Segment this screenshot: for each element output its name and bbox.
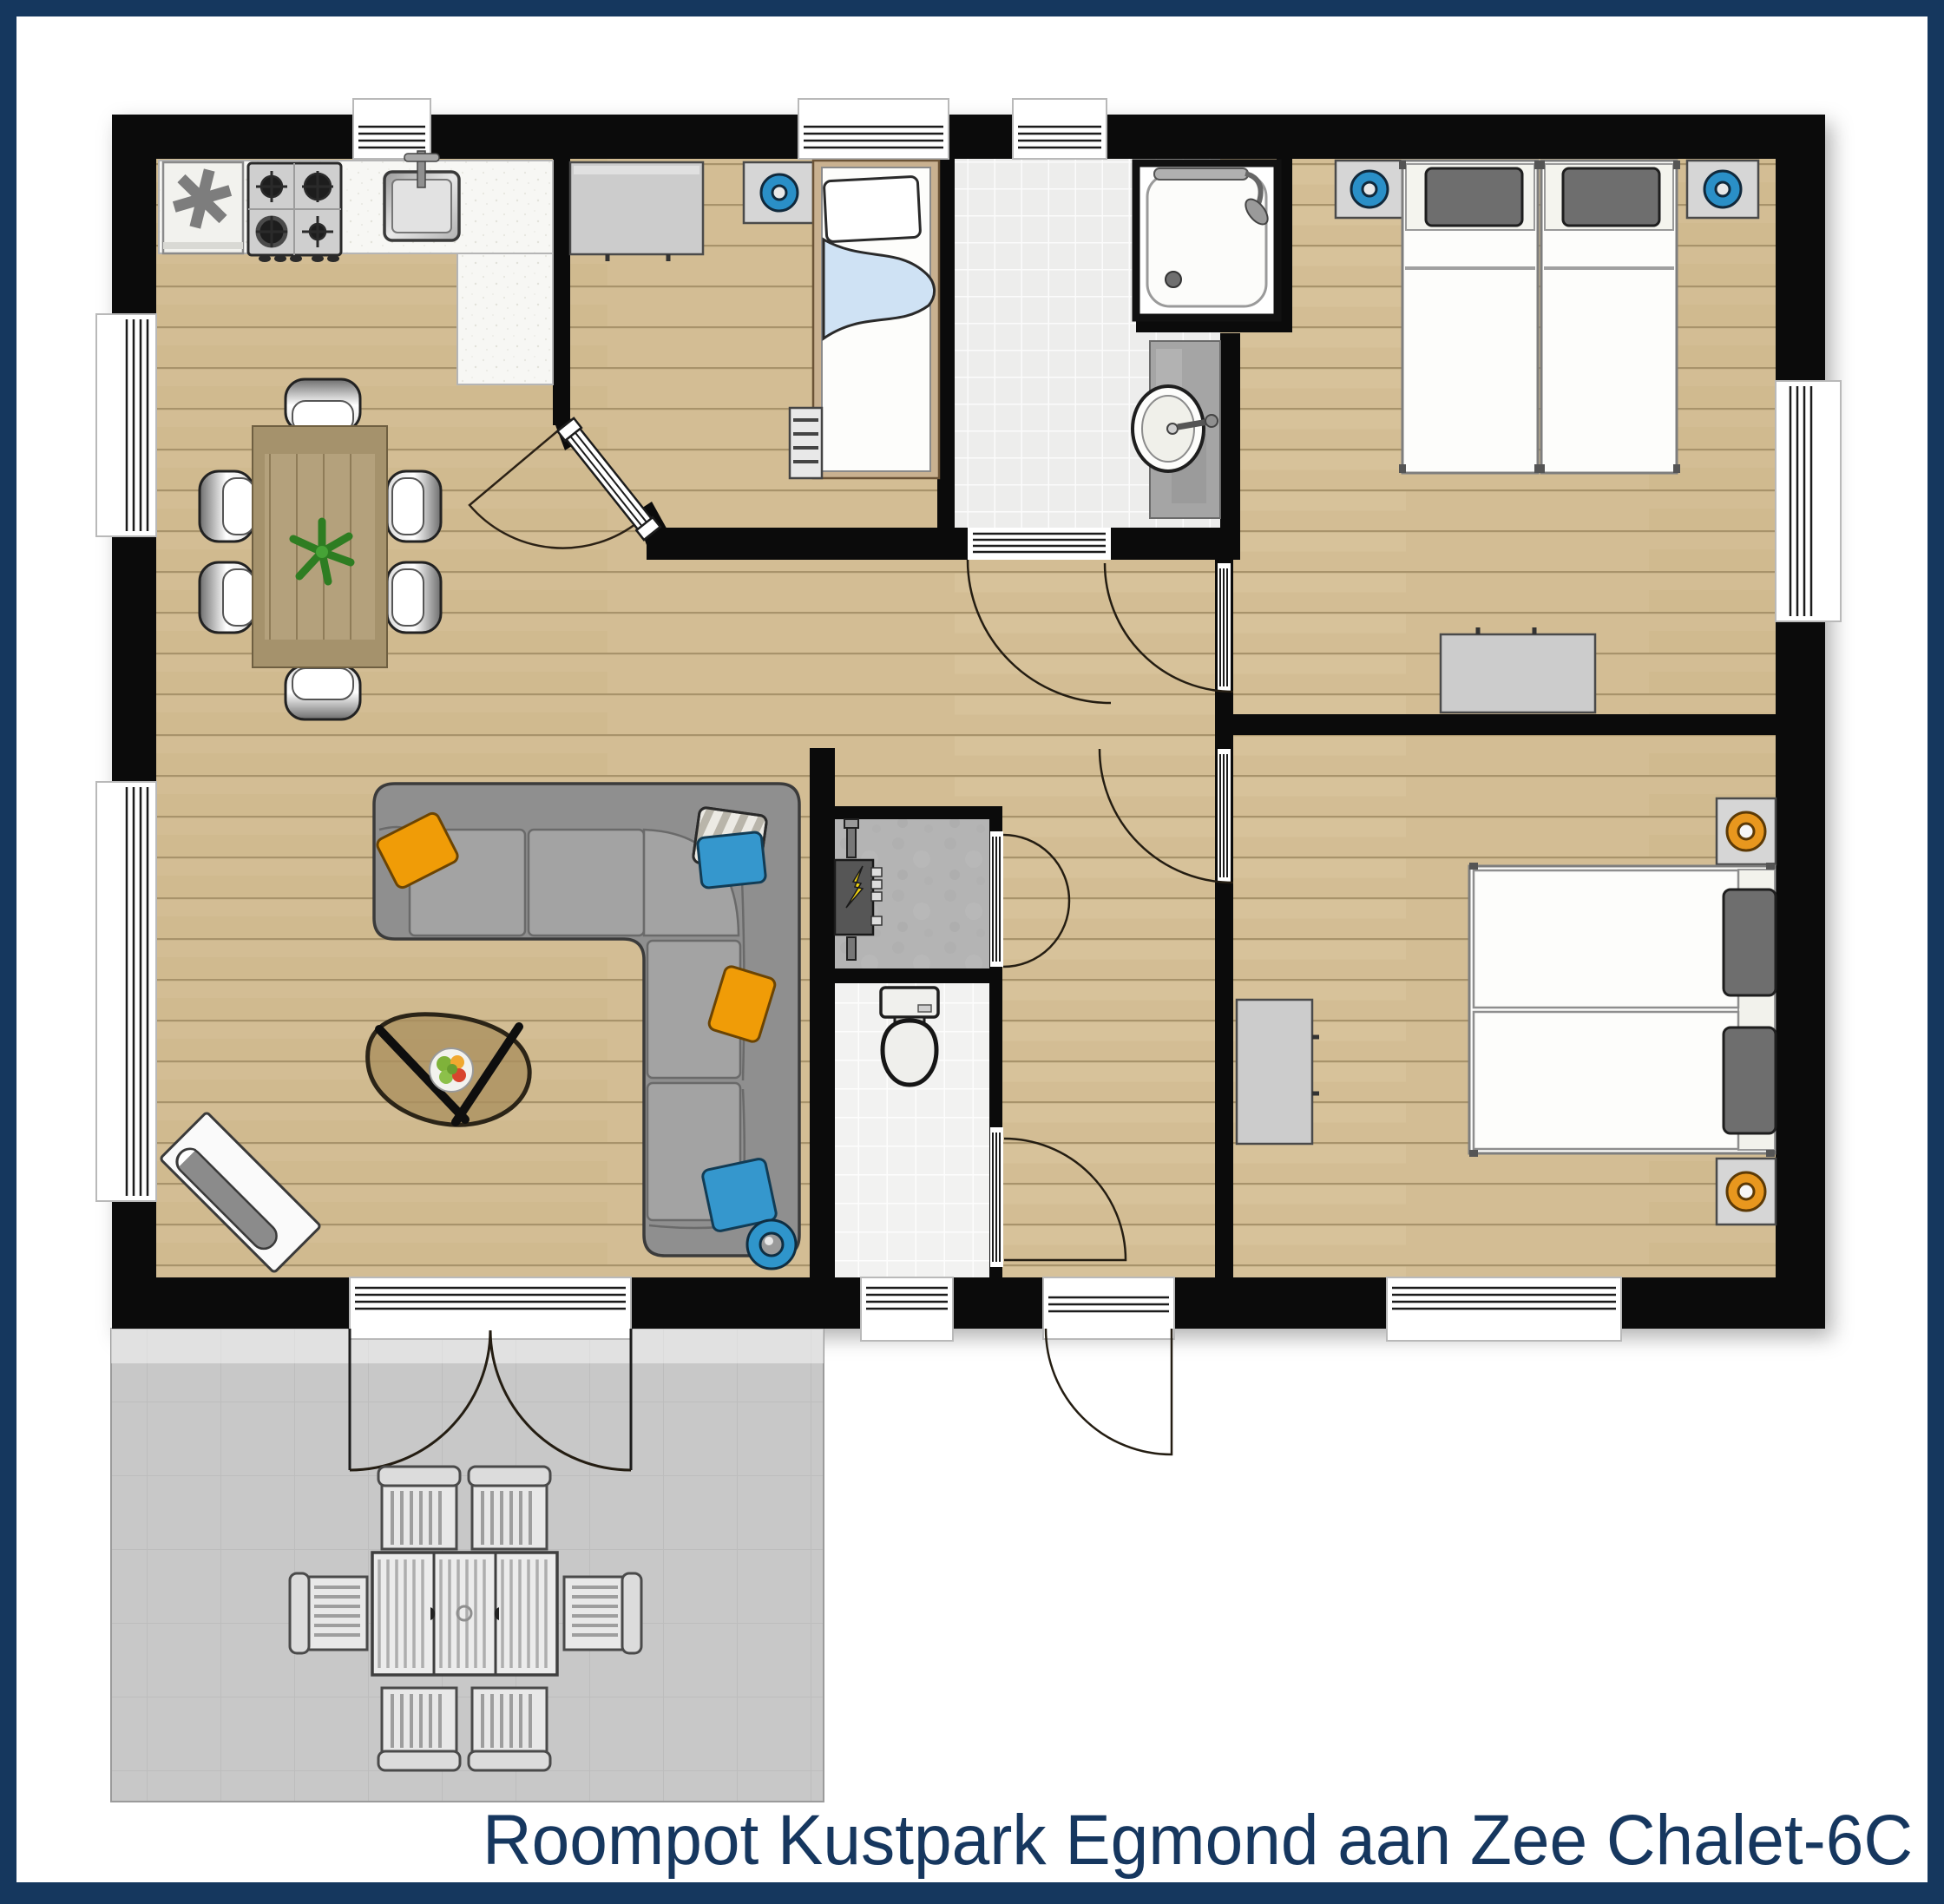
svg-text:Roompot Kustpark Egmond aan Ze: Roompot Kustpark Egmond aan Zee Chalet-6… bbox=[483, 1801, 1913, 1880]
